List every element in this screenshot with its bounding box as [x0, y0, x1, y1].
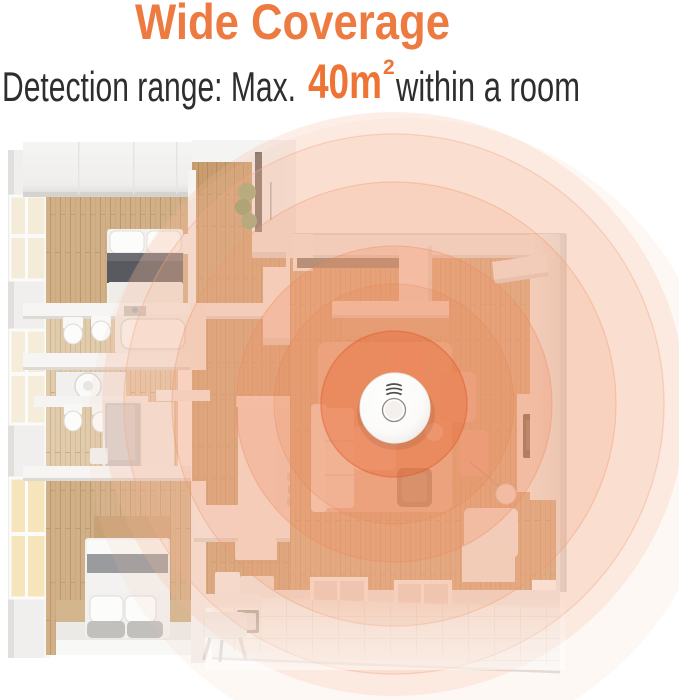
svg-text:within a room: within a room	[395, 63, 580, 110]
svg-text:Wide Coverage: Wide Coverage	[135, 0, 450, 50]
svg-text:2: 2	[383, 56, 395, 79]
svg-text:Detection range: Max.: Detection range: Max.	[2, 63, 296, 110]
svg-text:40m: 40m	[308, 56, 382, 109]
